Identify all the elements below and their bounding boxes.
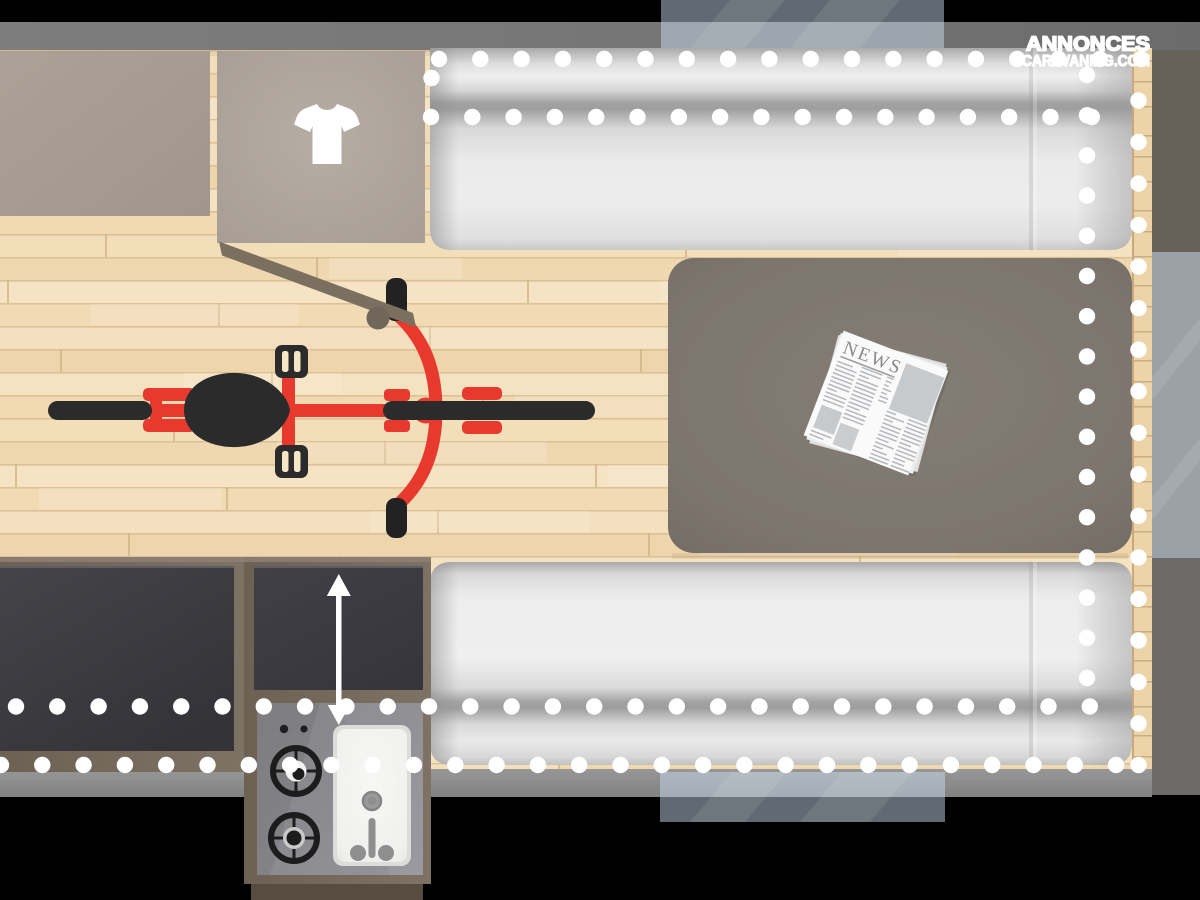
svg-text:CARAVANING.COM: CARAVANING.COM	[1022, 53, 1150, 70]
